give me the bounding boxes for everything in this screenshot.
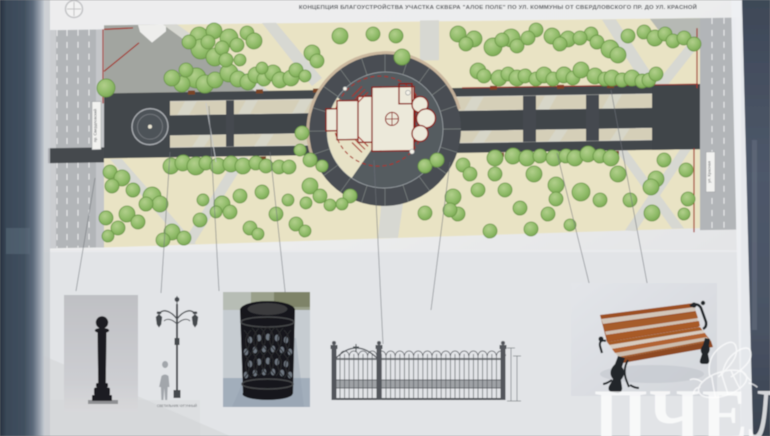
svg-text:ПЧЕЛ: ПЧЕЛ — [594, 375, 770, 436]
svg-text:ул. Красная: ул. Красная — [707, 161, 712, 183]
svg-text:КОНЦЕПЦИЯ БЛАГОУСТРОЙСТВА УЧАС: КОНЦЕПЦИЯ БЛАГОУСТРОЙСТВА УЧАСТКА СКВЕРА… — [299, 3, 697, 11]
svg-text:пр. Свердловский: пр. Свердловский — [93, 109, 98, 142]
svg-text:СВЕТИЛЬНИК ЧУГУННЫЙ: СВЕТИЛЬНИК ЧУГУННЫЙ — [157, 404, 198, 408]
